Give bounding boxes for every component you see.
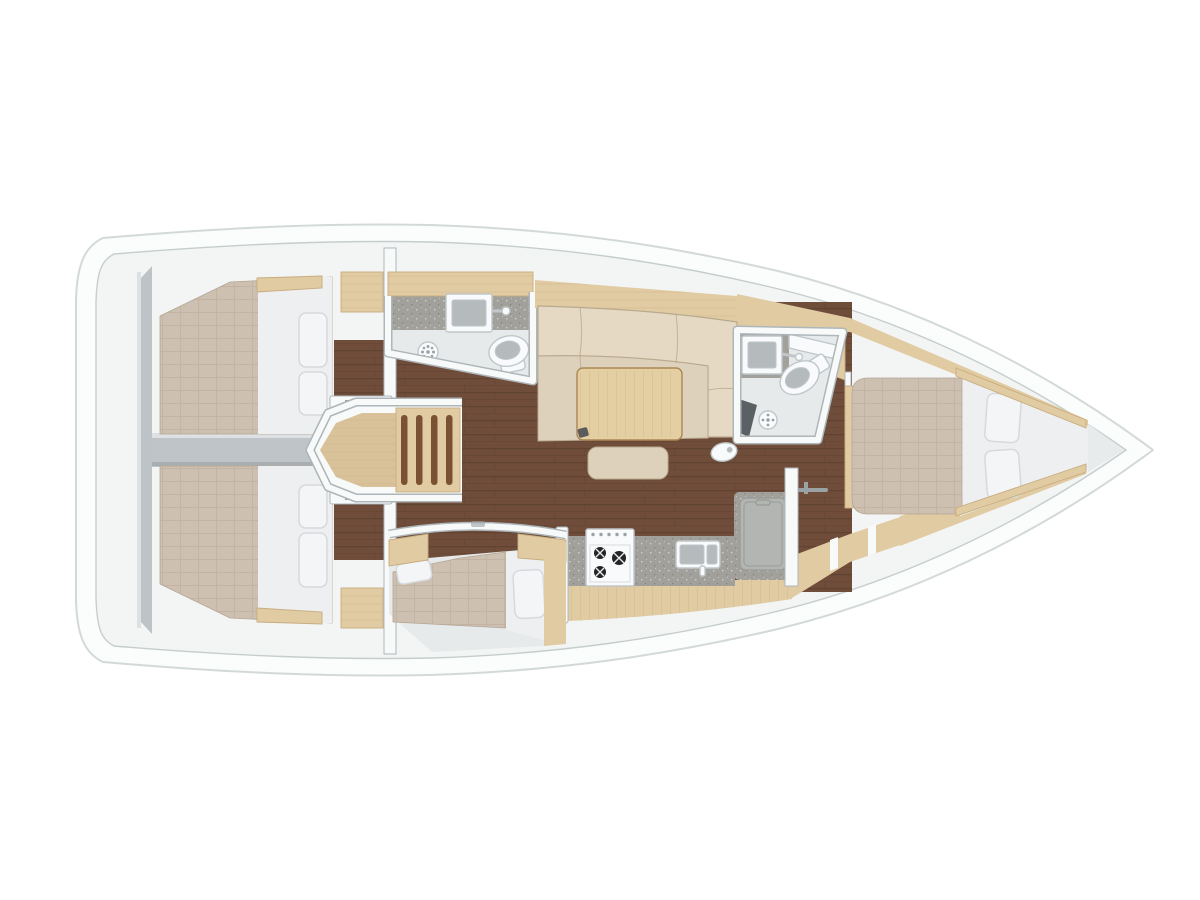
pillow [513,569,545,619]
fridge-lid [740,498,786,570]
yacht-floorplan-page: Sailing yacht interior layout plan — top… [0,0,1200,900]
companionway-stairs [310,402,462,498]
pillow [299,533,327,587]
sink-basin [748,342,776,368]
head-door-wall [785,468,798,586]
locker-left [389,534,428,566]
fridge [734,492,792,580]
stair-slot [446,415,453,485]
stove [586,529,634,586]
faucet-handle [796,354,803,361]
shower-drain [759,411,777,429]
cabin-floor-patch-planks [334,340,392,398]
stair-slot [401,415,408,485]
head-cabinet-grain [388,272,533,296]
stern-divider-shadow [152,462,320,466]
salon-table-grain [580,371,679,437]
galley-step-edge [830,537,838,571]
faucet-handle [502,307,510,315]
cabin-floor-patch-planks [334,502,392,560]
pillow [299,485,327,528]
stair-slot [416,415,423,485]
sink-faucet [700,566,705,576]
arch-latch [471,521,485,527]
head-door-handle [798,488,828,492]
pillow [299,313,327,367]
locker-cabinet-grain [341,272,383,312]
locker-column [544,540,566,646]
galley-step-edge [868,524,876,556]
head-door-handle-post [804,482,808,494]
sink-basin [452,300,486,326]
ottoman [588,447,668,479]
pillow [299,372,327,415]
stair-slot [431,415,438,485]
transom-wall-highlight [137,272,141,628]
yacht-floorplan-diagram: Sailing yacht interior layout plan — top… [0,0,1200,900]
locker-cabinet-grain [341,588,383,628]
stern-divider [152,433,320,467]
transom-wall [141,266,152,634]
fridge-lid-handle [756,500,770,505]
island-berth-mattress-texture [852,378,962,514]
